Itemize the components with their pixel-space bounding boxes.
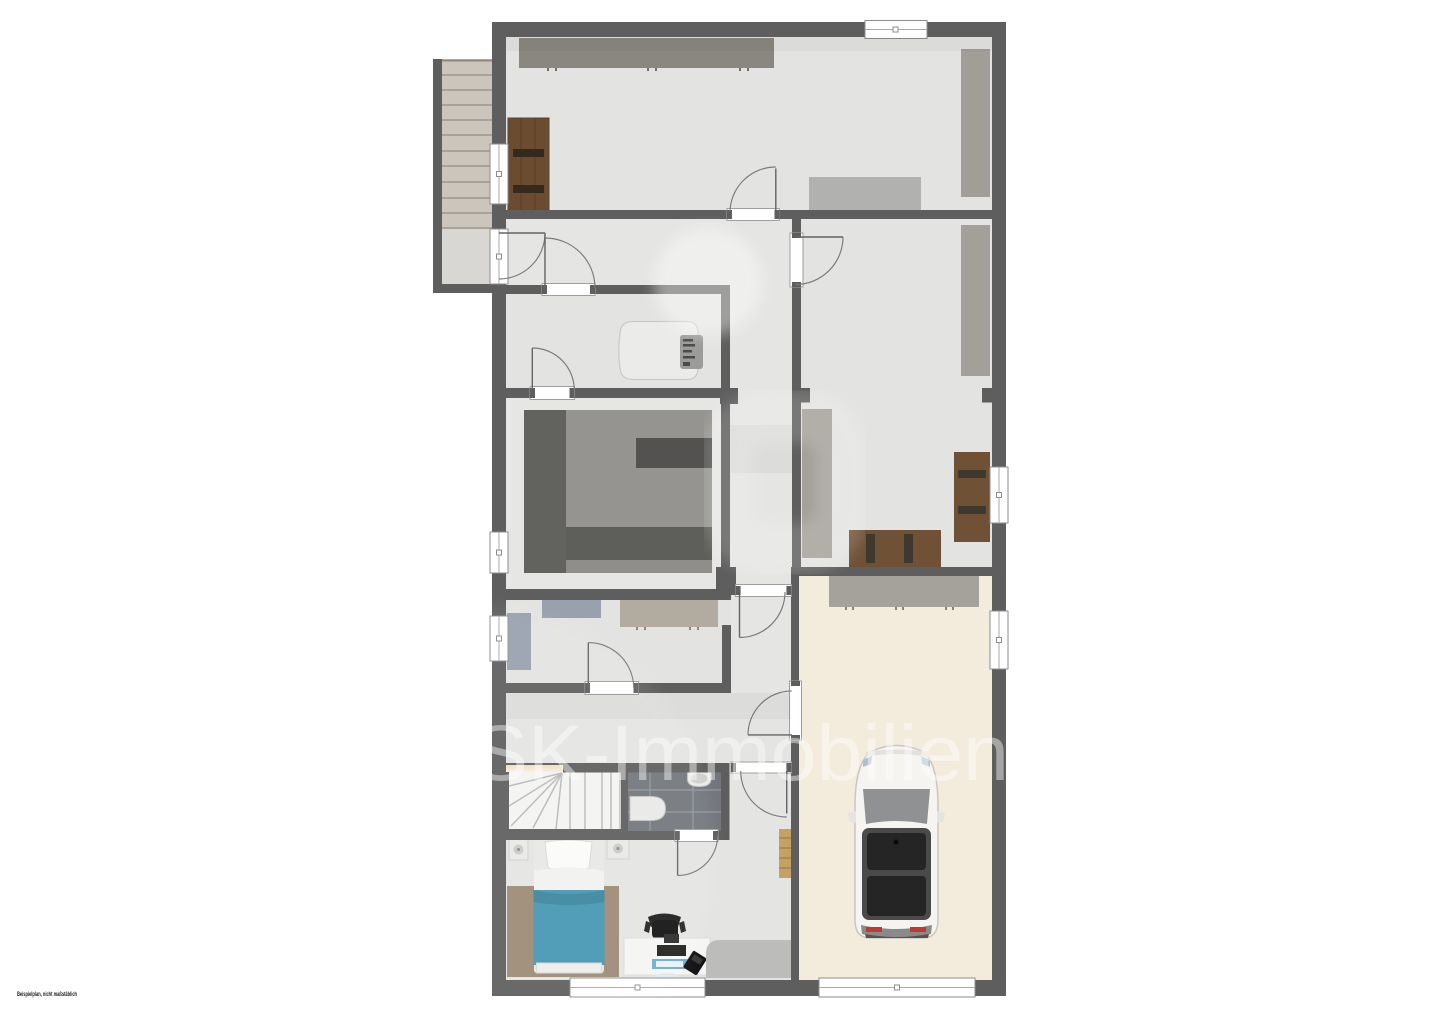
- svg-text:SK-Immobilien: SK-Immobilien: [473, 708, 1009, 797]
- svg-text:Beispielplan, nicht maßstäblic: Beispielplan, nicht maßstäblich: [17, 992, 77, 998]
